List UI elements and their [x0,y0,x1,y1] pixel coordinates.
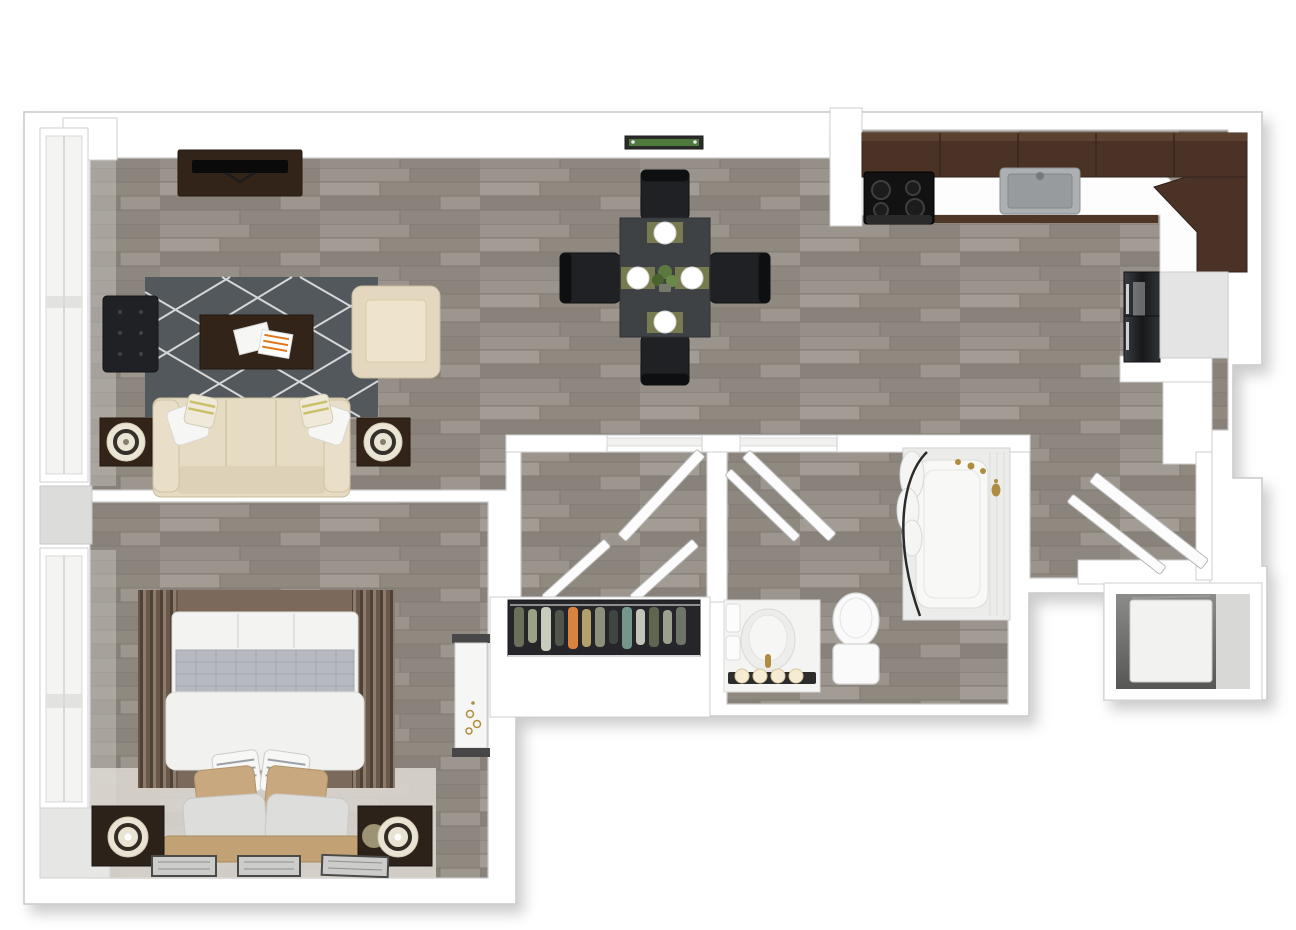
art-frame-1 [152,856,216,876]
bathroom-door-header [740,438,837,446]
wall-planter [625,136,703,149]
bedroom-window [40,548,88,810]
faucet [1036,172,1044,180]
toilet [833,593,879,684]
art-frame-2 [238,856,300,876]
tv-console [178,150,302,196]
utility-closet [1104,583,1262,700]
towels [726,604,740,660]
kitchen-sink [1000,168,1080,214]
lounge-armchair [352,286,440,378]
dressing-table [452,634,490,757]
dining-table [620,218,710,337]
upper-cabinets-highlight [862,133,1247,141]
side-table-left [100,418,152,466]
window-pier-wall [40,486,92,544]
sphere-lamp-right [378,817,418,857]
living-room-window [40,128,88,482]
window-light-bedroom [90,550,116,806]
sofa [153,393,352,497]
table-lamp-left [107,423,145,461]
floor-plan [0,0,1296,930]
bed [164,612,366,862]
hall-bathroom-divider [707,452,727,602]
coffee-table [200,315,313,369]
tufted-accent-chair [103,296,158,372]
closet [490,597,710,717]
kitchen-side-panel [1160,272,1228,358]
utility-inner-wall [1216,594,1250,689]
utility-appliance [1130,600,1212,682]
wall-art-frames [152,855,388,877]
base-cabinet-front [930,215,1158,223]
oven-door [866,215,932,224]
hall-door-header [607,438,702,446]
cooktop [864,172,934,224]
entry-threshold [1078,560,1210,584]
refrigerator [1124,272,1160,362]
toilet-tank [833,644,879,684]
side-table-right [357,418,410,466]
vanity [724,600,820,692]
vanity-faucet [765,654,771,668]
throw-blanket [176,650,354,696]
television [192,160,288,173]
hall-wall-mid [702,435,740,452]
hall-wall-left [506,435,607,452]
table-lamp-right [364,423,402,461]
art-frame-3 [322,855,389,877]
kitchen-wall-stub [830,108,862,226]
sphere-lamp-left [108,817,148,857]
